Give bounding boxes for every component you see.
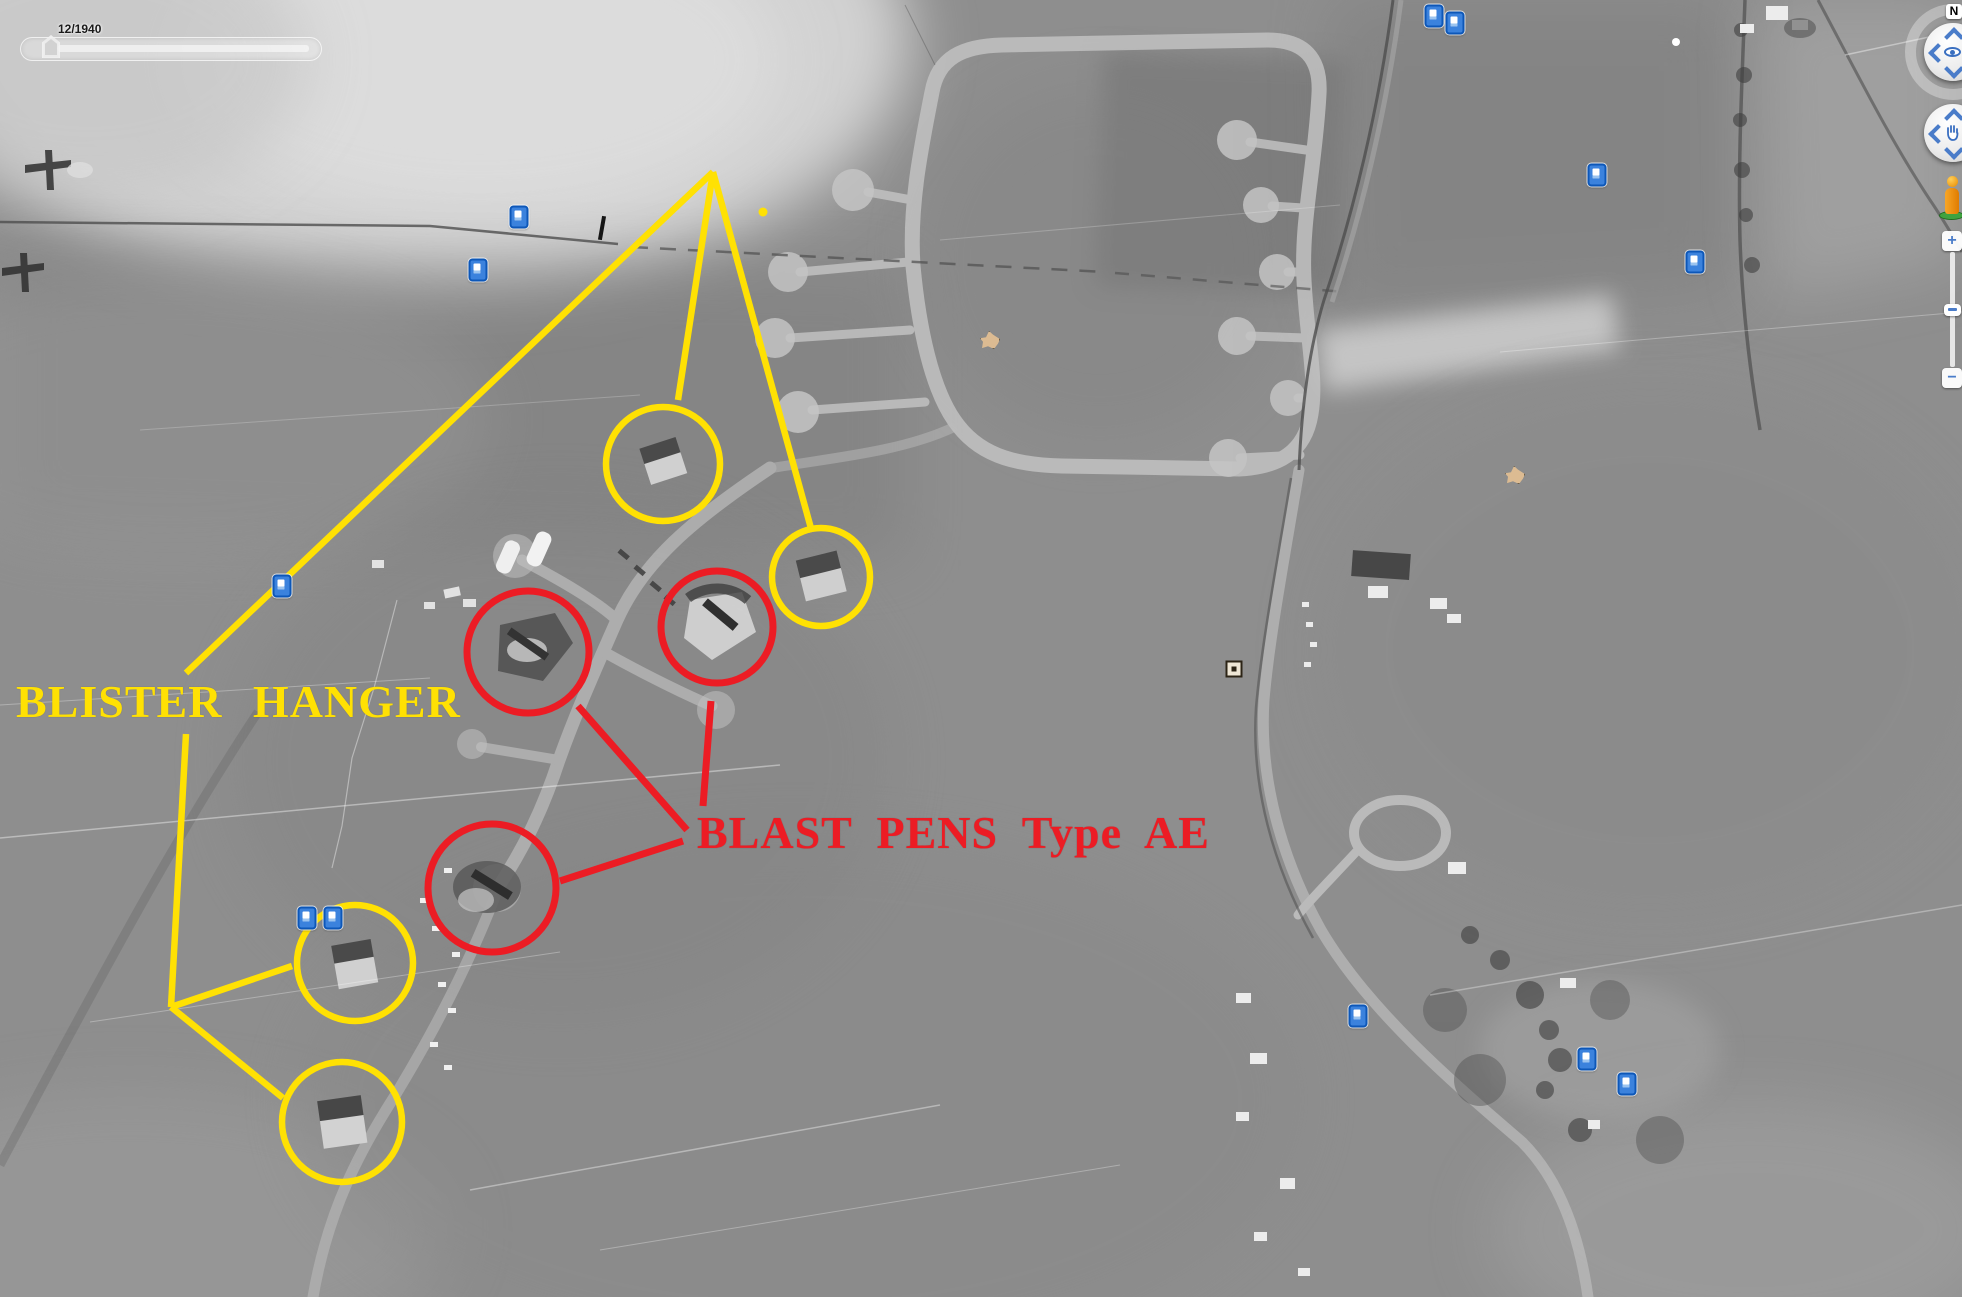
plane-marker[interactable] (980, 331, 1000, 349)
square-placemark[interactable] (1226, 661, 1243, 678)
photo-marker-glyph (1583, 1053, 1590, 1063)
imagery-date-label: 12/1940 (58, 22, 101, 36)
pegman-street-view[interactable] (1938, 175, 1962, 221)
photo-marker-glyph (474, 264, 481, 274)
photo-marker-glyph (303, 912, 310, 922)
hand-icon (1944, 123, 1962, 143)
chevron-down-icon[interactable] (1944, 59, 1962, 79)
photo-marker[interactable] (1446, 12, 1465, 35)
square-placemark-glyph (1232, 667, 1237, 672)
plane-marker[interactable] (1505, 466, 1525, 484)
time-slider-knob-face (45, 39, 57, 55)
chevron-up-icon[interactable] (1944, 27, 1962, 47)
eye-icon (1944, 47, 1961, 57)
photo-marker-glyph (1691, 256, 1698, 266)
photo-marker[interactable] (273, 575, 292, 598)
time-slider-groove (57, 45, 309, 52)
photo-marker[interactable] (1588, 164, 1607, 187)
pegman-body (1945, 188, 1959, 214)
photo-marker[interactable] (1686, 251, 1705, 274)
zoom-out-button[interactable]: − (1942, 368, 1962, 388)
photo-marker-glyph (1593, 169, 1600, 179)
time-slider-track[interactable] (20, 37, 322, 61)
pegman-head (1947, 176, 1958, 187)
photo-marker-glyph (278, 580, 285, 590)
photo-marker[interactable] (324, 907, 343, 930)
photo-marker[interactable] (1425, 5, 1444, 28)
photo-marker[interactable] (298, 907, 317, 930)
photo-marker[interactable] (510, 206, 529, 229)
photo-marker[interactable] (1578, 1048, 1597, 1071)
chevron-down-icon[interactable] (1944, 140, 1962, 160)
compass-north-indicator[interactable]: N (1946, 4, 1962, 19)
photo-marker[interactable] (1618, 1073, 1637, 1096)
photo-marker[interactable] (1349, 1005, 1368, 1028)
photo-marker-glyph (1354, 1010, 1361, 1020)
photo-marker-glyph (1430, 10, 1437, 20)
google-earth-viewport[interactable]: BLISTER HANGER BLAST PENS Type AE 12/194… (0, 0, 1962, 1297)
photo-marker-glyph (515, 211, 522, 221)
photo-marker-glyph (1623, 1078, 1630, 1088)
zoom-handle-bar (1948, 308, 1957, 311)
photo-marker-glyph (1451, 17, 1458, 27)
markers-layer (0, 0, 1962, 1297)
photo-marker[interactable] (469, 259, 488, 282)
eye-pupil-icon (1950, 50, 1955, 55)
photo-marker-glyph (329, 912, 336, 922)
zoom-in-button[interactable]: + (1942, 231, 1962, 251)
zoom-slider-handle[interactable] (1944, 304, 1961, 316)
historical-imagery-slider[interactable]: 12/1940 (20, 22, 330, 66)
